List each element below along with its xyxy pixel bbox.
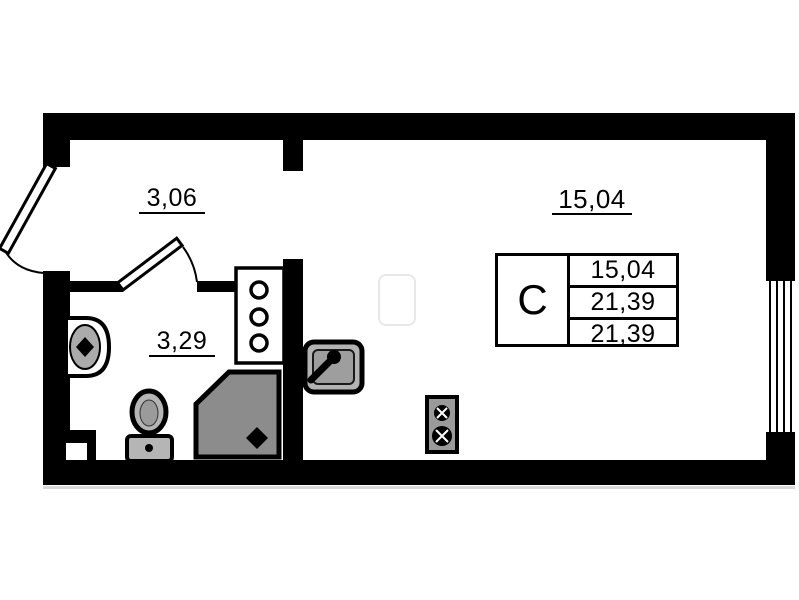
apartment-type-label: С <box>498 256 570 344</box>
toilet-icon <box>127 391 172 461</box>
shower-icon <box>196 372 279 457</box>
floor-plan: 3,06 3,29 15,04 С 15,04 21,39 21,39 <box>0 0 799 600</box>
kitchen-sink-icon <box>305 342 362 392</box>
hall-area-label: 3,06 <box>139 186 205 214</box>
fixtures-layer <box>0 0 799 600</box>
ventilation-unit-icon <box>427 397 457 452</box>
area-value-row: 21,39 <box>570 285 676 317</box>
area-value-row: 15,04 <box>570 256 676 285</box>
apartment-areas: 15,04 21,39 21,39 <box>570 256 676 344</box>
bathroom-sink-icon <box>66 318 109 376</box>
apartment-info-box: С 15,04 21,39 21,39 <box>495 253 679 347</box>
utility-cabinet-icon <box>236 268 284 363</box>
living-area-label: 15,04 <box>552 186 632 215</box>
area-value-row: 21,39 <box>570 317 676 349</box>
bathroom-door-icon <box>118 238 197 290</box>
bathroom-area-label: 3,29 <box>149 329 215 357</box>
entry-door-icon <box>0 164 55 273</box>
